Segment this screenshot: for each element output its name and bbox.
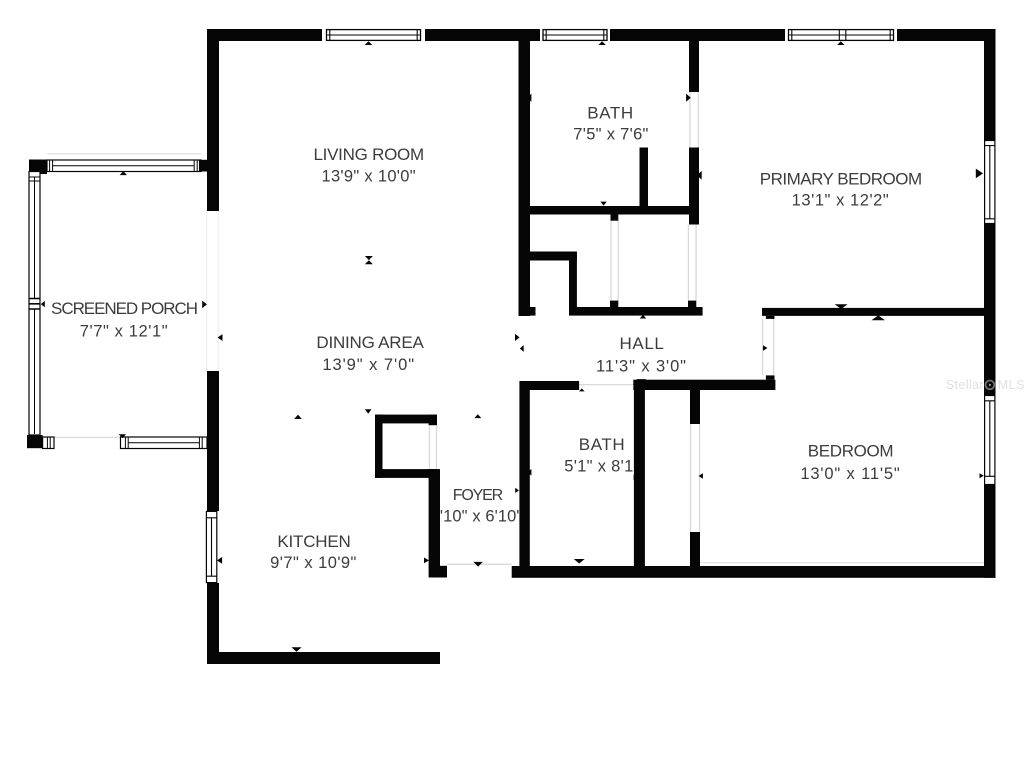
svg-text:7'5" x 7'6": 7'5" x 7'6" [573, 126, 648, 144]
svg-text:13'0" x 11'5": 13'0" x 11'5" [800, 465, 900, 483]
svg-text:13'9" x 10'0": 13'9" x 10'0" [321, 168, 415, 186]
svg-text:9'7" x 10'9": 9'7" x 10'9" [270, 554, 357, 572]
svg-text:MLS: MLS [998, 378, 1024, 392]
svg-text:KITCHEN: KITCHEN [277, 532, 350, 551]
svg-text:PRIMARY BEDROOM: PRIMARY BEDROOM [760, 170, 922, 189]
svg-text:BATH: BATH [579, 435, 625, 454]
svg-text:11'3" x 3'0": 11'3" x 3'0" [596, 358, 687, 376]
svg-text:3'10" x 6'10": 3'10" x 6'10" [431, 508, 523, 526]
svg-text:BATH: BATH [587, 104, 633, 123]
svg-text:5'1" x 8'1": 5'1" x 8'1" [564, 458, 639, 476]
svg-text:Stellar: Stellar [946, 378, 984, 392]
svg-text:13'1" x 12'2": 13'1" x 12'2" [792, 192, 890, 210]
svg-text:DINING AREA: DINING AREA [316, 333, 424, 352]
svg-text:LIVING ROOM: LIVING ROOM [313, 145, 424, 164]
svg-text:7'7" x 12'1": 7'7" x 12'1" [80, 323, 169, 341]
svg-text:BEDROOM: BEDROOM [808, 442, 894, 461]
svg-text:FOYER: FOYER [453, 487, 503, 504]
svg-text:SCREENED PORCH: SCREENED PORCH [51, 299, 197, 318]
svg-text:13'9" x 7'0": 13'9" x 7'0" [322, 356, 415, 374]
svg-text:HALL: HALL [620, 334, 665, 353]
